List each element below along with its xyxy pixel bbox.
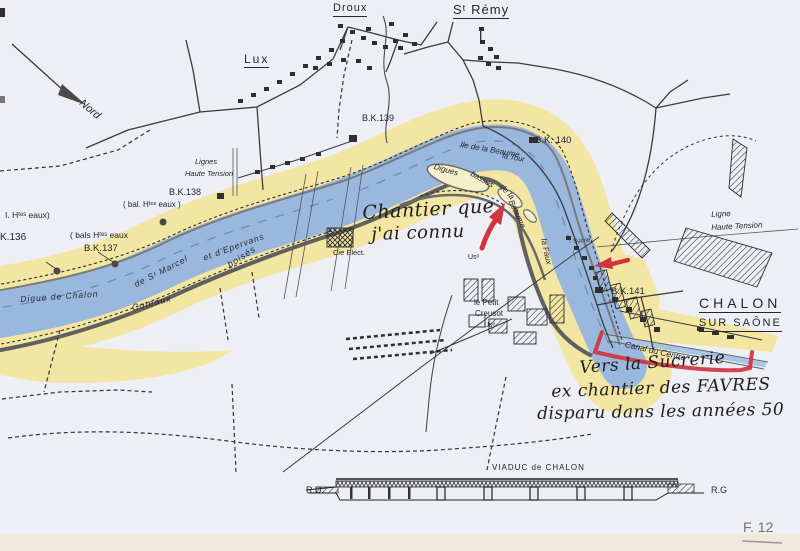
- km-marker-bk139: B.K.139: [362, 114, 394, 123]
- city-label-sur-saone: SUR SAÔNE: [699, 318, 782, 332]
- viaduct-title: VIADUC de CHALON: [492, 464, 585, 472]
- factory-label: Usᵉ: [468, 254, 479, 261]
- km-marker-bk136: K.136: [0, 233, 26, 243]
- map-drawing: [0, 0, 800, 551]
- km-marker-bk140: B.K. 140: [535, 136, 571, 146]
- power-line-label-left-2: Haute Tension: [185, 170, 233, 178]
- handwritten-note-chantier-2: j'ai connu: [371, 223, 465, 244]
- water-level-note-3: ( bal. Hᵗᵉˢ eaux ): [123, 201, 181, 209]
- town-label-droux: Droux: [333, 3, 367, 17]
- water-level-note-1: I. Hᵗᵉˢ eaux): [5, 211, 50, 220]
- town-label-st-remy: Sᵗ Rémy: [453, 3, 509, 19]
- electric-company-label: Cie Elect.: [333, 249, 365, 257]
- km-marker-bk138: B.K.138: [169, 188, 201, 197]
- power-line-label-left-1: Lignes: [195, 158, 217, 166]
- viaduct-right-bank-label: R.G: [711, 486, 727, 495]
- water-level-note-2: ( bals Hᵗᵉˢ eaux: [70, 231, 128, 240]
- handwritten-note-sucrerie-3: disparu dans les années 50: [537, 402, 784, 423]
- city-label-chalon: CHALON: [699, 296, 781, 313]
- km-marker-bk141: B.K.141: [611, 287, 645, 297]
- power-line-label-right-1: Ligne: [711, 210, 731, 219]
- petit-creusot-label-3: Usᵉ: [484, 322, 495, 329]
- figure-number: F. 12: [743, 520, 773, 534]
- petit-creusot-label-1: le Petit: [474, 299, 498, 307]
- scanned-map-page: Droux Lux Sᵗ Rémy Nord Lignes Haute Tens…: [0, 0, 800, 551]
- km-marker-bk137: B.K.137: [84, 244, 118, 254]
- town-label-lux: Lux: [244, 53, 269, 68]
- viaduct-left-bank-label: R.D.: [306, 486, 324, 495]
- petit-creusot-label-2: Creusot: [475, 310, 503, 318]
